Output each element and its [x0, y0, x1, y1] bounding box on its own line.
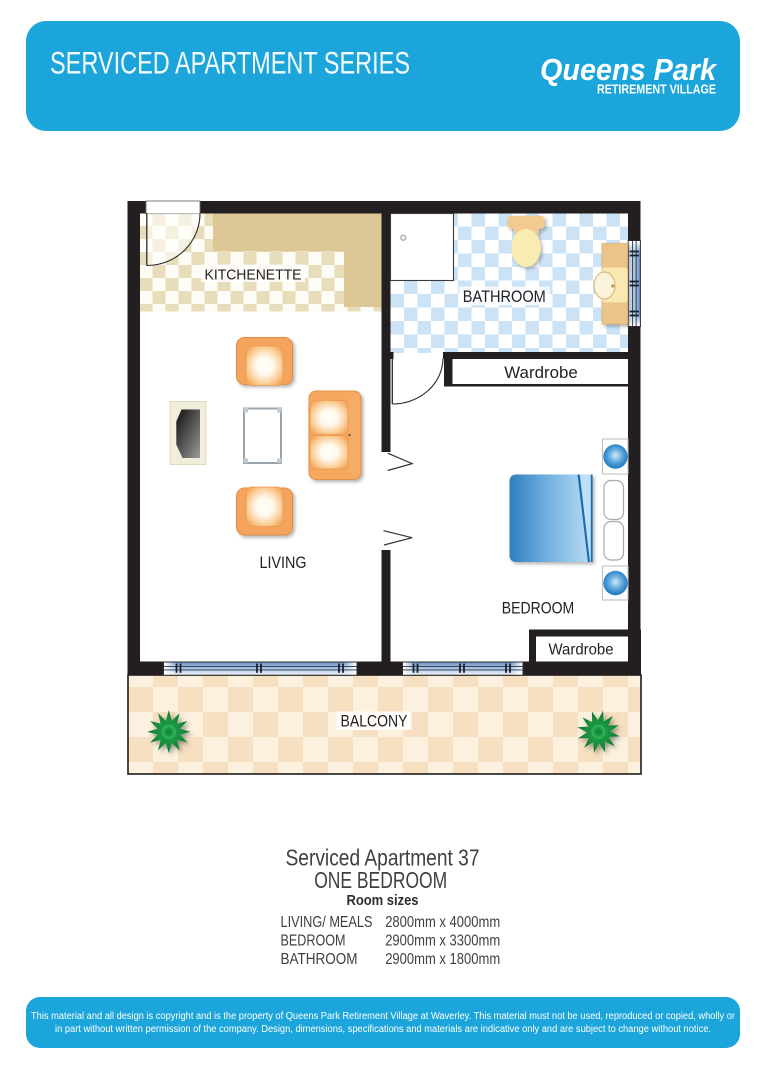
svg-text:2900mm x 1800mm: 2900mm x 1800mm — [385, 951, 500, 968]
svg-text:BEDROOM: BEDROOM — [281, 932, 346, 949]
svg-text:Wardrobe: Wardrobe — [504, 363, 578, 382]
svg-text:Wardrobe: Wardrobe — [549, 642, 614, 659]
svg-text:LIVING/ MEALS: LIVING/ MEALS — [281, 914, 373, 931]
svg-text:KITCHENETTE: KITCHENETTE — [205, 267, 302, 284]
svg-text:BATHROOM: BATHROOM — [463, 287, 546, 306]
svg-text:2900mm x 3300mm: 2900mm x 3300mm — [385, 932, 500, 949]
svg-text:ONE BEDROOM: ONE BEDROOM — [314, 867, 447, 893]
svg-text:2800mm x 4000mm: 2800mm x 4000mm — [385, 914, 500, 931]
svg-text:This material and all design i: This material and all design is copyrigh… — [31, 1011, 736, 1022]
svg-text:BEDROOM: BEDROOM — [502, 599, 575, 617]
svg-text:BATHROOM: BATHROOM — [281, 951, 358, 968]
svg-text:LIVING: LIVING — [260, 553, 307, 572]
svg-text:BALCONY: BALCONY — [341, 713, 408, 731]
svg-text:Room sizes: Room sizes — [347, 892, 419, 909]
svg-text:in part without written permis: in part without written permission of th… — [55, 1024, 711, 1035]
